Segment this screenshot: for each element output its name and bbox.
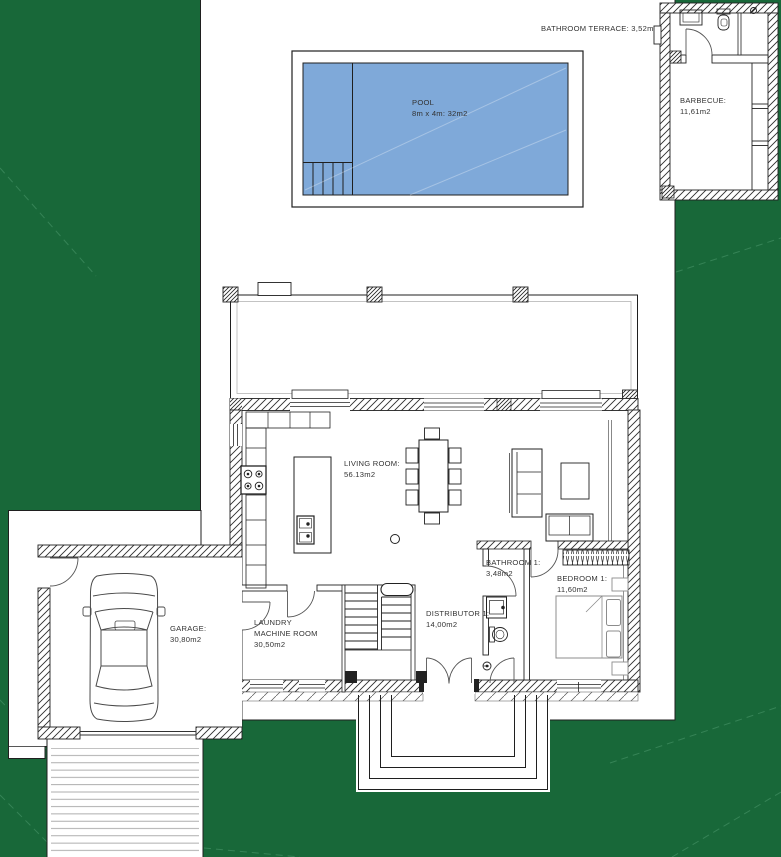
terrace-column (223, 287, 238, 302)
nightstand (612, 578, 628, 591)
garage-area: 30,80m2 (170, 635, 201, 644)
chair (406, 469, 418, 484)
bedroom1-area: 11,60m2 (557, 585, 588, 594)
stair-handrail (381, 584, 413, 596)
terrace-step (258, 283, 291, 296)
laundry-label-1: LAUNDRY (254, 618, 292, 627)
chair (449, 490, 461, 505)
chair (406, 448, 418, 463)
living-room-label: LIVING ROOM: (344, 459, 400, 468)
barbecue-structure: BARBECUE: 11,61m2 (654, 3, 778, 200)
dining-table (419, 440, 448, 512)
wall-column (670, 51, 681, 63)
barbecue-area-label: 11,61m2 (680, 107, 711, 116)
sofa (510, 449, 543, 517)
nightstand (612, 662, 628, 675)
paving-strip (230, 692, 423, 701)
chair (449, 469, 461, 484)
wall-niche (654, 26, 661, 44)
pool-label: POOL (412, 98, 434, 107)
pool-size-label: 8m x 4m: 32m2 (412, 109, 468, 118)
chair (425, 513, 440, 524)
loveseat (546, 514, 593, 541)
island-sink (297, 516, 314, 544)
wall-stub (416, 671, 427, 683)
barbecue-label: BARBECUE: (680, 96, 726, 105)
living-room-area: 56.13m2 (344, 470, 375, 479)
wardrobe (563, 550, 629, 565)
floor-plan-drawing: POOL 8m x 4m: 32m2 BATHROOM TERRACE: 3,5… (0, 0, 781, 857)
pool: POOL 8m x 4m: 32m2 (292, 51, 583, 207)
shower-partition (738, 13, 741, 55)
porch-plot-patch (356, 692, 550, 792)
distributor-label: DISTRIBUTOR 1: (426, 609, 489, 618)
staircase (345, 584, 413, 651)
chair (425, 428, 440, 439)
bed (556, 596, 622, 658)
chair (406, 490, 418, 505)
laundry-area: 30,50m2 (254, 640, 285, 649)
wall-stub (345, 671, 357, 683)
chair (449, 448, 461, 463)
bedroom1-label: BEDROOM 1: (557, 574, 607, 583)
bathroom1-label: BATHROOM 1: (486, 558, 541, 567)
wall-column (662, 186, 674, 198)
bathroom1-area: 3,48m2 (486, 569, 513, 578)
cooktop (241, 466, 266, 494)
distributor-area: 14,00m2 (426, 620, 457, 629)
terrace-column (367, 287, 382, 302)
west-window (230, 424, 242, 446)
bathroom-terrace-label: BATHROOM TERRACE: 3,52m2 (541, 24, 658, 33)
garage (38, 545, 270, 739)
terrace-column (513, 287, 528, 302)
paving-strip (475, 692, 638, 701)
floor-plan-page: POOL 8m x 4m: 32m2 BATHROOM TERRACE: 3,5… (0, 0, 781, 857)
garage-label: GARAGE: (170, 624, 206, 633)
driveway (47, 739, 203, 857)
laundry-label-2: MACHINE ROOM (254, 629, 318, 638)
bathroom-sink (487, 597, 507, 618)
